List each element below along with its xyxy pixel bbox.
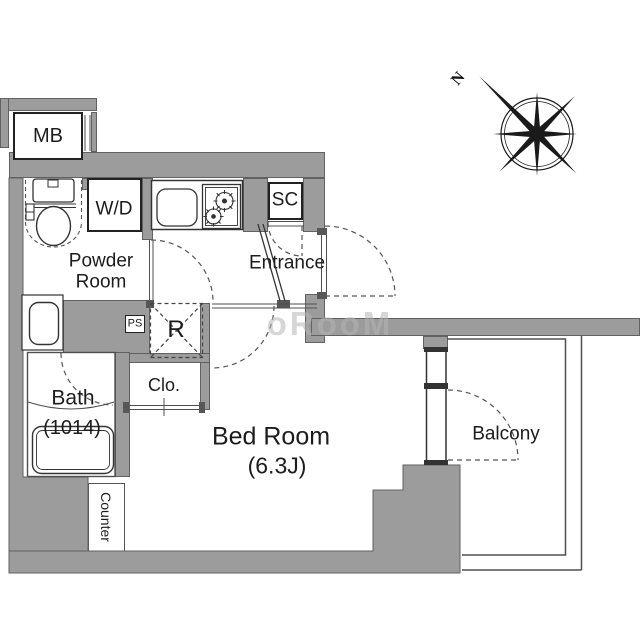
label-refrigerator: R <box>167 318 184 342</box>
label-powder-room-1: Powder <box>69 252 133 271</box>
label-washer-dryer: W/D <box>96 200 133 219</box>
powder-room-door <box>150 240 154 300</box>
powder-door-swing <box>151 240 213 302</box>
label-entrance: Entrance <box>249 254 325 273</box>
label-shoe-closet: SC <box>272 191 298 210</box>
entrance-door-swing <box>325 226 395 296</box>
label-bath: Bath <box>51 388 94 409</box>
closet-door <box>123 398 205 416</box>
floor-plan: N MB W/D SC Powder Room Entrance PS R Cl… <box>0 0 640 640</box>
washbasin-icon <box>22 295 63 350</box>
shoe-closet-door-swing <box>268 222 302 256</box>
balcony-outline <box>447 336 582 570</box>
label-counter: Counter <box>99 492 113 542</box>
shoe-closet-door <box>268 222 304 227</box>
label-powder-room-2: Room <box>76 273 127 292</box>
toilet-icon <box>26 179 82 247</box>
label-bath-size: (1014) <box>43 418 101 438</box>
watermark: oRooM <box>267 305 394 343</box>
kitchen-counter <box>152 181 243 230</box>
balcony-window <box>424 347 448 465</box>
meter-box-door <box>85 115 90 151</box>
label-meter-box: MB <box>33 126 63 146</box>
bedroom-door-swing <box>212 306 274 368</box>
label-closet: Clo. <box>148 376 180 394</box>
label-bedroom: Bed Room <box>212 425 330 450</box>
compass-rose-icon: N <box>448 68 577 176</box>
label-balcony: Balcony <box>472 425 540 444</box>
compass-north-label: N <box>448 68 469 88</box>
label-bedroom-size: (6.3J) <box>248 455 307 478</box>
label-pipe-space: PS <box>128 319 143 330</box>
sink-icon <box>157 189 197 226</box>
